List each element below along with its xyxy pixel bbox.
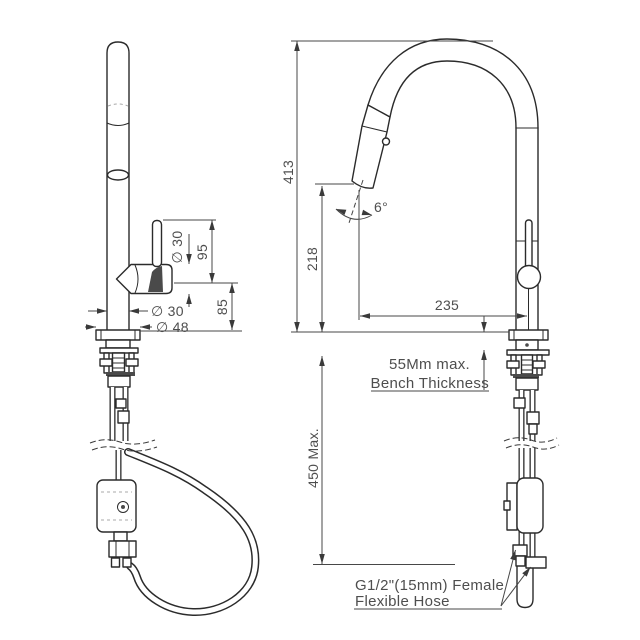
right-view-gooseneck-outer — [368, 39, 538, 128]
right-view-handle-ball — [518, 266, 541, 289]
left-view-joint-ring — [108, 170, 129, 180]
left-view-break-line — [90, 440, 157, 451]
arrowheads — [294, 41, 533, 577]
left-view-riser-hoses — [113, 387, 130, 441]
faucet-dimension-drawing: ∅ 30 95 85 ∅ 30 ∅ 48 — [0, 0, 640, 640]
right-view-gooseneck-inner — [390, 61, 516, 128]
dim-spout-reach-235: 235 — [435, 297, 459, 313]
dim-handle-height-95: 95 — [194, 244, 210, 260]
right-view-mounting — [507, 330, 549, 390]
note-bench-thickness-line2: Bench Thickness — [371, 375, 489, 392]
dim-outlet-height-218: 218 — [304, 247, 320, 271]
dim-spray-angle-6deg: 6° — [374, 199, 388, 215]
note-flexible-hose-line2: Flexible Hose — [355, 593, 450, 610]
right-view-spray-head — [352, 105, 390, 188]
note-bench-thickness-line1: 55Mm max. — [389, 356, 470, 373]
right-view-dimensions: 413 218 235 6° 55Mm max. Bench Thickness… — [280, 41, 533, 610]
right-view-spray-button — [383, 138, 390, 145]
right-view-weight-assembly — [504, 448, 546, 608]
right-view-hose-end — [517, 562, 533, 608]
left-view-mounting — [96, 330, 140, 387]
drawing-canvas: ∅ 30 95 85 ∅ 30 ∅ 48 — [0, 0, 640, 640]
dim-under-bench-450max: 450 Max. — [305, 428, 321, 488]
right-view-riser-hoses — [514, 390, 539, 441]
right-view-handle-pin — [526, 220, 533, 268]
left-view-weight-assembly — [97, 450, 136, 567]
left-view-hose-loop — [128, 452, 255, 612]
dim-spout-height-85: 85 — [214, 299, 230, 315]
left-view-faucet: ∅ 30 95 85 ∅ 30 ∅ 48 — [85, 42, 255, 612]
dim-overall-height-413: 413 — [280, 160, 296, 184]
dim-body-diameter: ∅ 30 — [151, 303, 184, 319]
right-view-faucet: 413 218 235 6° 55Mm max. Bench Thickness… — [280, 39, 559, 610]
dim-handle-diameter: ∅ 30 — [169, 231, 185, 264]
left-view-handle-pin — [153, 221, 162, 267]
dim-base-diameter: ∅ 48 — [156, 319, 189, 335]
note-flexible-hose-line1: G1/2"(15mm) Female — [355, 577, 504, 594]
